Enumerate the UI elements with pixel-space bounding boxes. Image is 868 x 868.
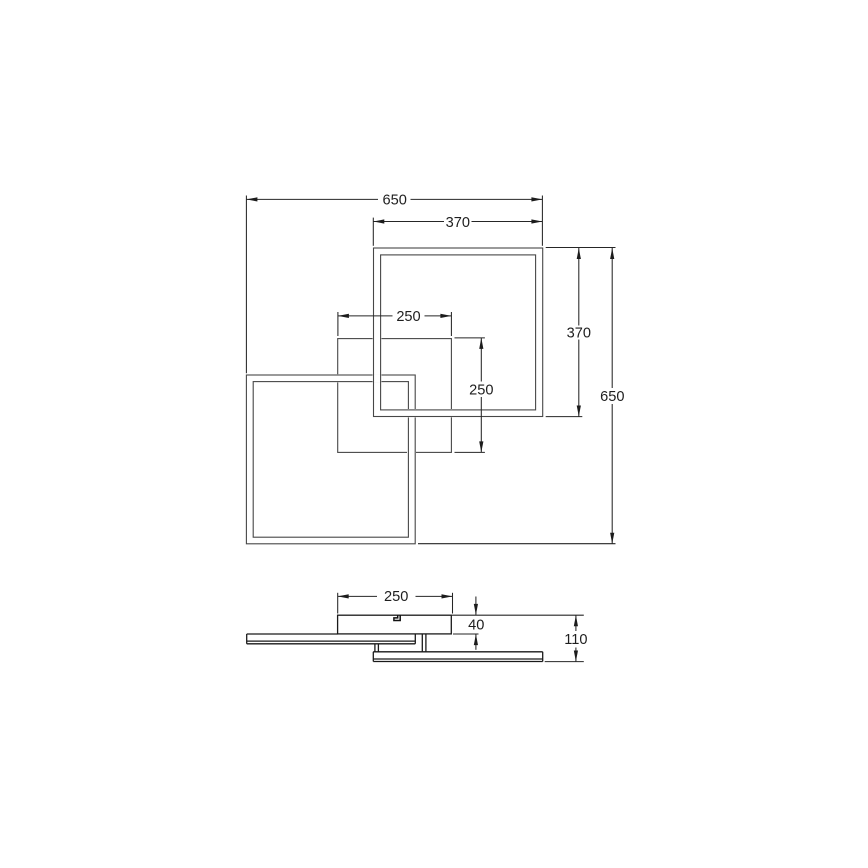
svg-text:250: 250	[384, 589, 408, 605]
svg-text:650: 650	[383, 193, 407, 209]
svg-text:250: 250	[396, 309, 420, 325]
svg-text:250: 250	[469, 382, 493, 398]
svg-text:370: 370	[567, 326, 591, 342]
svg-text:370: 370	[446, 215, 470, 231]
svg-text:650: 650	[600, 389, 624, 405]
svg-text:40: 40	[468, 618, 484, 634]
svg-text:110: 110	[564, 632, 587, 648]
